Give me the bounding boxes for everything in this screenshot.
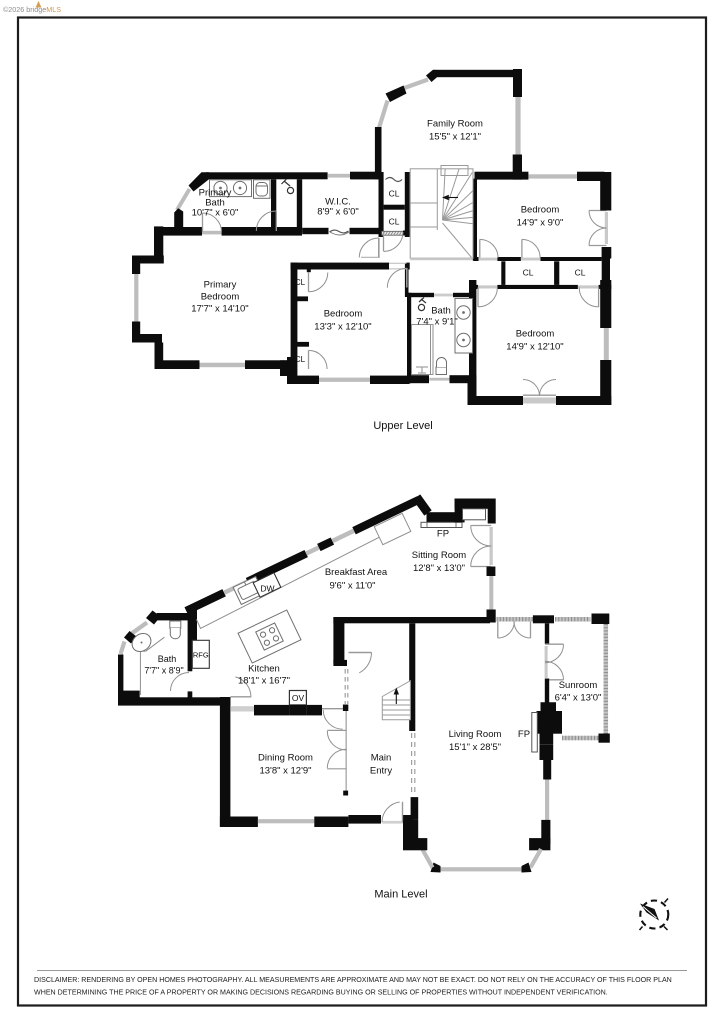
svg-text:Living Room: Living Room (449, 729, 502, 740)
svg-text:Main: Main (371, 753, 392, 764)
svg-text:DISCLAIMER: RENDERING BY OPEN: DISCLAIMER: RENDERING BY OPEN HOMES PHOT… (34, 976, 672, 984)
svg-text:CL: CL (295, 355, 306, 364)
svg-text:9'6" x 11'0": 9'6" x 11'0" (329, 581, 375, 592)
svg-text:Main Level: Main Level (374, 889, 427, 901)
svg-text:OV: OV (292, 693, 305, 703)
svg-text:14'9" x 9'0": 14'9" x 9'0" (517, 218, 564, 229)
svg-text:Bath: Bath (158, 654, 177, 664)
svg-text:Bedroom: Bedroom (201, 292, 240, 303)
svg-text:12'8" x 13'0": 12'8" x 13'0" (413, 563, 465, 574)
svg-text:6'4" x 13'0": 6'4" x 13'0" (555, 693, 602, 704)
svg-text:Bath: Bath (431, 306, 451, 317)
svg-text:CL: CL (295, 278, 306, 287)
svg-text:Primary: Primary (204, 280, 237, 291)
svg-text:7'4" x 9'1": 7'4" x 9'1" (416, 317, 458, 328)
svg-text:Sitting Room: Sitting Room (412, 550, 466, 561)
svg-text:7'7" x 8'9": 7'7" x 8'9" (144, 666, 183, 676)
svg-text:Dining Room: Dining Room (258, 753, 313, 764)
svg-text:CL: CL (523, 268, 534, 278)
svg-text:15'1" x 28'5": 15'1" x 28'5" (449, 742, 501, 753)
svg-text:RFG: RFG (193, 651, 209, 660)
svg-text:Upper Level: Upper Level (373, 420, 432, 432)
svg-text:DW: DW (260, 584, 274, 594)
svg-text:FP: FP (437, 529, 449, 540)
svg-text:13'8" x 12'9": 13'8" x 12'9" (259, 766, 311, 777)
svg-text:Family Room: Family Room (427, 119, 483, 130)
svg-text:15'5" x 12'1": 15'5" x 12'1" (429, 132, 481, 143)
svg-text:©2026 bridgeMLS: ©2026 bridgeMLS (3, 5, 61, 14)
svg-text:Entry: Entry (370, 766, 392, 777)
svg-text:Bedroom: Bedroom (521, 205, 560, 216)
svg-text:Breakfast Area: Breakfast Area (325, 567, 388, 578)
svg-text:WHEN DETERMINING THE PRICE OF: WHEN DETERMINING THE PRICE OF A PROPERTY… (34, 989, 608, 997)
svg-text:CL: CL (389, 189, 400, 199)
svg-text:17'7" x 14'10": 17'7" x 14'10" (191, 304, 248, 315)
svg-text:Kitchen: Kitchen (248, 664, 280, 675)
svg-text:10'7" x 6'0": 10'7" x 6'0" (192, 208, 239, 219)
svg-text:Bedroom: Bedroom (324, 309, 363, 320)
svg-text:Sunroom: Sunroom (559, 680, 598, 691)
svg-text:13'3" x 12'10": 13'3" x 12'10" (314, 322, 371, 333)
svg-text:8'9" x 6'0": 8'9" x 6'0" (317, 207, 359, 218)
svg-text:CL: CL (389, 217, 400, 227)
svg-text:14'9" x 12'10": 14'9" x 12'10" (506, 342, 563, 353)
svg-text:CL: CL (575, 268, 586, 278)
svg-text:Bedroom: Bedroom (516, 329, 555, 340)
svg-text:FP: FP (518, 729, 530, 740)
svg-text:18'1" x 16'7": 18'1" x 16'7" (238, 676, 290, 687)
